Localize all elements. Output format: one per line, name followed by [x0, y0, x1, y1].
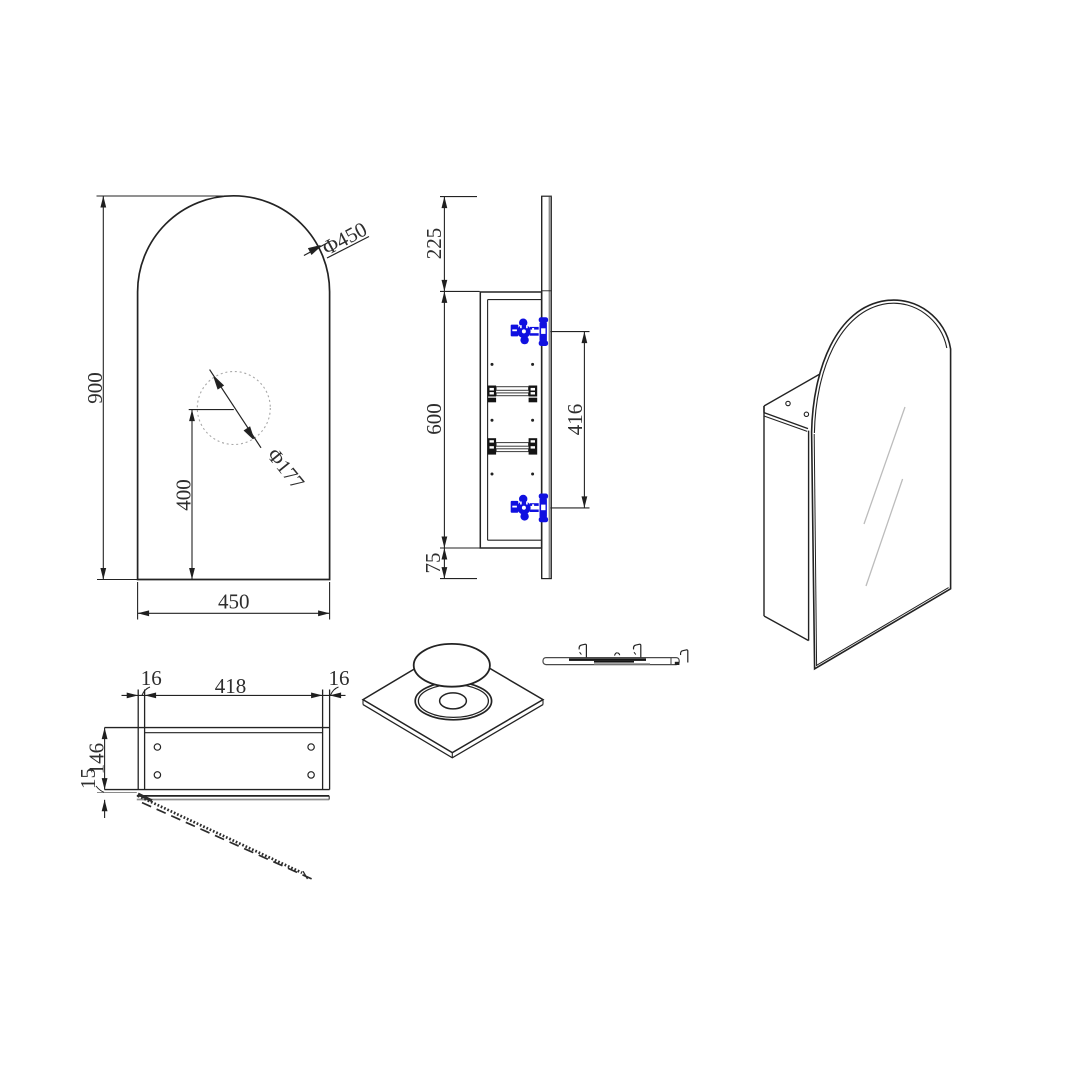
- svg-text:75: 75: [421, 553, 445, 574]
- svg-text:16: 16: [141, 666, 162, 690]
- svg-text:225: 225: [422, 228, 446, 260]
- svg-text:600: 600: [422, 403, 446, 435]
- svg-text:418: 418: [215, 674, 247, 698]
- svg-text:Φ450: Φ450: [318, 217, 371, 260]
- svg-text:450: 450: [218, 590, 250, 614]
- svg-text:416: 416: [563, 404, 587, 436]
- svg-text:Φ177: Φ177: [262, 445, 308, 494]
- svg-text:16: 16: [329, 666, 350, 690]
- svg-text:15: 15: [76, 768, 100, 789]
- svg-text:400: 400: [172, 479, 196, 511]
- svg-text:900: 900: [83, 372, 107, 404]
